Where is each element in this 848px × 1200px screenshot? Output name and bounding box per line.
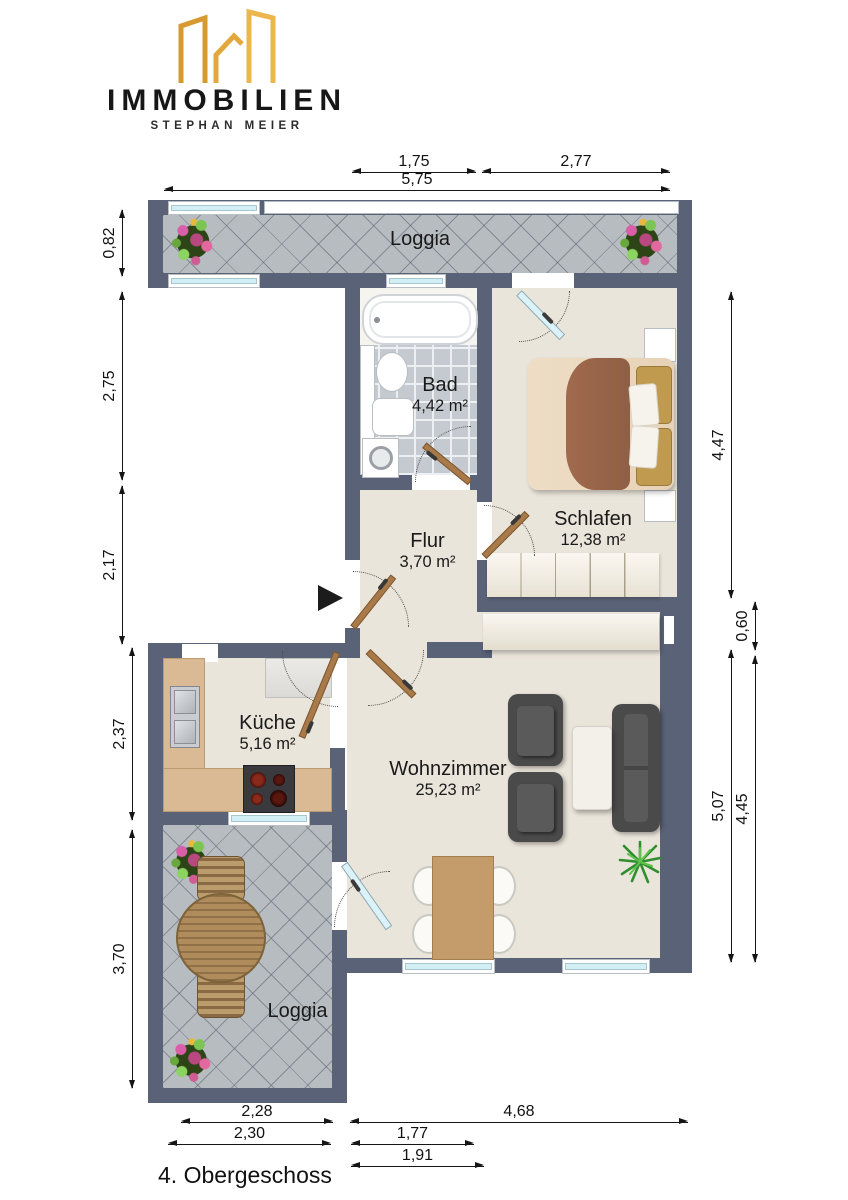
room-area: 3,70 m² (370, 553, 485, 572)
wall-segment (477, 597, 692, 612)
room-name: Loggia (240, 1000, 355, 1022)
room-name: Wohnzimmer (358, 758, 538, 780)
bad-window (386, 274, 446, 288)
dimension-left-3: 2,17 (122, 486, 123, 644)
loggia-table (176, 893, 266, 983)
sideboard (483, 614, 659, 650)
balcony-door-opening-top (512, 273, 574, 288)
wall-segment (148, 643, 163, 1103)
flower-planter-icon (618, 216, 666, 268)
flower-planter-icon (168, 1036, 214, 1084)
room-area: 4,42 m² (380, 397, 500, 416)
armchair (508, 694, 563, 766)
room-name: Loggia (360, 228, 480, 250)
entrance-arrow-icon (318, 585, 343, 611)
loggia-railing (264, 201, 679, 214)
room-label-bad: Bad 4,42 m² (380, 374, 500, 416)
window (168, 274, 260, 288)
dimension-right-3: 5,07 (731, 650, 732, 962)
room-area: 25,23 m² (358, 781, 538, 800)
washing-machine (362, 438, 399, 478)
dining-table (432, 856, 494, 960)
room-label-loggia-top: Loggia (360, 228, 480, 250)
room-name: Küche (200, 712, 335, 734)
bedside-table (644, 328, 676, 362)
room-label-kueche: Küche 5,16 m² (200, 712, 335, 754)
room-name: Bad (380, 374, 500, 396)
wardrobe (487, 553, 659, 597)
bathtub (362, 294, 478, 345)
dimension-bottom-5: 1,91 (351, 1166, 484, 1167)
dimension-left-2: 2,75 (122, 292, 123, 480)
kueche-window (228, 811, 310, 826)
bed-cushion (628, 383, 660, 427)
dimension-bottom-2: 2,30 (168, 1144, 331, 1145)
window (168, 201, 260, 215)
dimension-bottom-3: 4,68 (350, 1122, 688, 1123)
dimension-right-4: 4,45 (755, 656, 756, 962)
stove (243, 765, 295, 813)
dimension-right-1: 4,47 (731, 292, 732, 598)
dimension-bottom-1: 2,28 (181, 1122, 333, 1123)
dimension-right-2: 0,60 (755, 602, 756, 650)
wohnzimmer-window (562, 959, 650, 974)
sofa (612, 704, 660, 832)
bed-cushion (629, 425, 660, 469)
floor-title: 4. Obergeschoss (158, 1162, 332, 1189)
wall-segment (660, 612, 692, 973)
room-area: 5,16 m² (200, 735, 335, 754)
coffee-table (572, 726, 612, 810)
bed-blanket (566, 358, 630, 490)
washer-door-icon (369, 446, 393, 470)
plant-icon (616, 838, 664, 886)
dimension-left-1: 0,82 (122, 210, 123, 276)
dimension-left-4: 2,37 (132, 648, 133, 820)
kitchen-sink (170, 686, 200, 748)
room-label-loggia-bottom: Loggia (240, 1000, 355, 1022)
room-name: Flur (370, 530, 485, 552)
room-area: 12,38 m² (518, 531, 668, 550)
flower-planter-icon (170, 216, 216, 268)
wohnzimmer-window (402, 959, 495, 974)
room-label-schlafen: Schlafen 12,38 m² (518, 508, 668, 550)
room-name: Schlafen (518, 508, 668, 530)
dimension-bottom-4: 1,77 (351, 1144, 474, 1145)
dimension-left-5: 3,70 (132, 830, 133, 1088)
room-label-flur: Flur 3,70 m² (370, 530, 485, 572)
wall-segment (148, 1088, 347, 1103)
floor-plan: Loggia Bad 4,42 m² Schlafen 12,38 m² Flu… (0, 0, 848, 1200)
dimension-top-3: 5,75 (164, 190, 670, 191)
wall-niche (664, 616, 674, 644)
room-label-wohnzimmer: Wohnzimmer 25,23 m² (358, 758, 538, 800)
dimension-top-2: 2,77 (482, 172, 670, 173)
